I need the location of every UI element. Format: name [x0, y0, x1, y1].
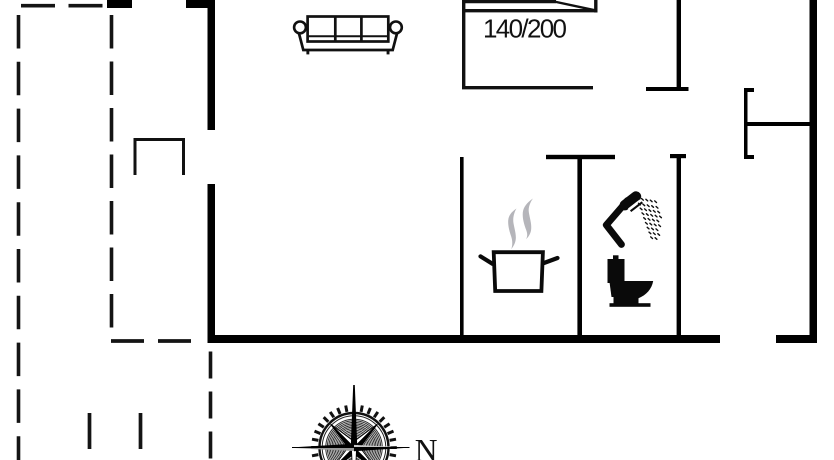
svg-text:N: N — [415, 433, 438, 460]
svg-text:140/200: 140/200 — [483, 14, 567, 44]
